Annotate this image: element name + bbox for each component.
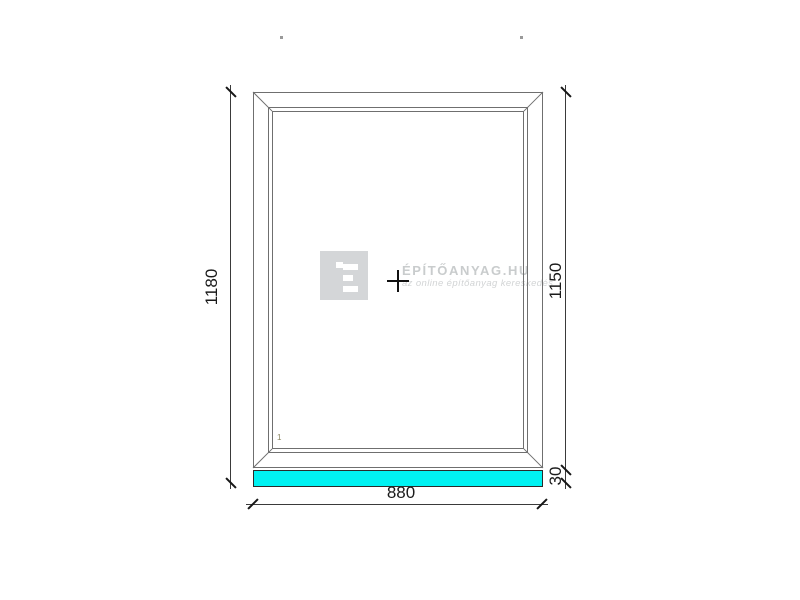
dimension-line-left <box>230 85 231 489</box>
technical-drawing-canvas: ÉPÍTŐANYAG.HU az online építőanyag keres… <box>0 0 800 600</box>
dimension-label-height-left: 1180 <box>203 267 221 307</box>
dimension-label-height-right: 1150 <box>547 261 565 301</box>
sash-number-label: 1 <box>277 433 281 442</box>
dimension-tick <box>225 86 236 97</box>
dimension-line-right <box>565 85 566 489</box>
dimension-tick <box>560 86 571 97</box>
artifact-dot-left <box>280 36 283 39</box>
dimension-label-width: 880 <box>379 484 423 502</box>
center-cross-mark-vertical <box>397 270 399 292</box>
dimension-line-bottom <box>246 504 548 505</box>
dimension-label-sill-height: 30 <box>547 464 565 488</box>
dimension-tick <box>225 477 236 488</box>
artifact-dot-right <box>520 36 523 39</box>
